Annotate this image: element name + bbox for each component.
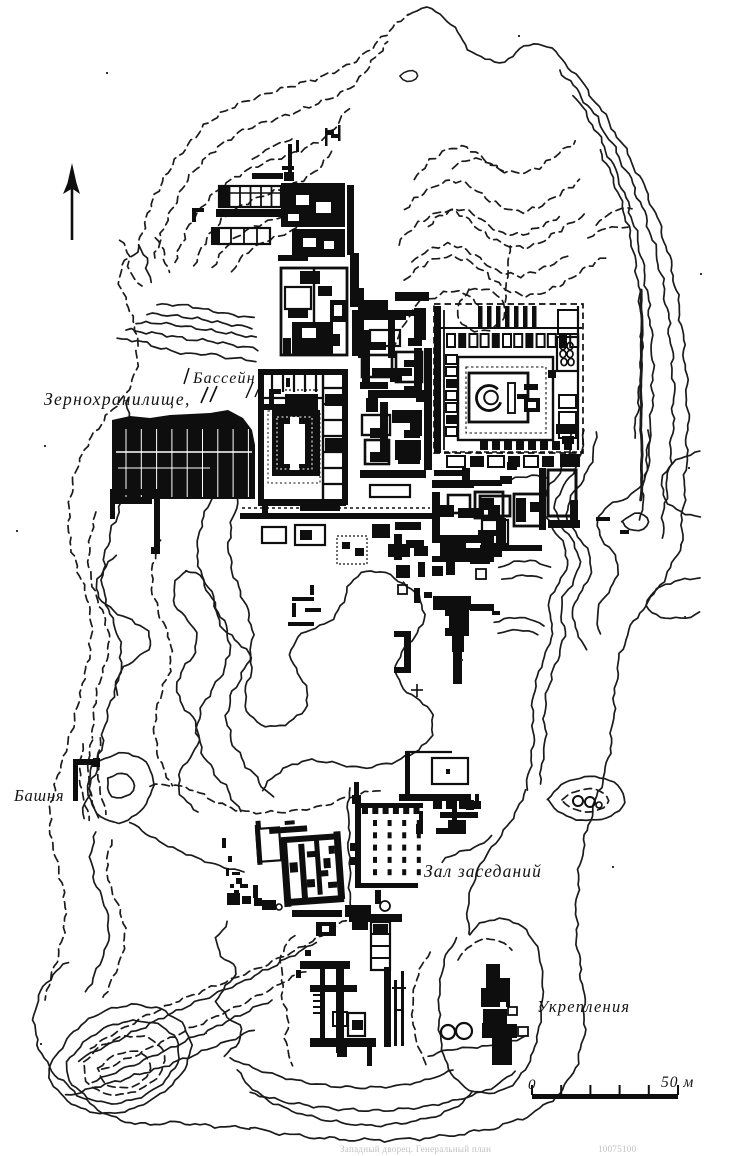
svg-text:Укрепления: Укрепления xyxy=(537,997,630,1016)
svg-text:Западный дворец. Генеральный п: Западный дворец. Генеральный план xyxy=(340,1144,491,1154)
svg-text:Бассейн: Бассейн xyxy=(192,370,256,387)
svg-text:0: 0 xyxy=(528,1077,536,1093)
svg-text:Зал заседаний: Зал заседаний xyxy=(424,861,542,881)
svg-text:10075100: 10075100 xyxy=(598,1144,637,1154)
svg-text:Зернохранилище,: Зернохранилище, xyxy=(44,389,191,409)
svg-text:Башня: Башня xyxy=(13,786,64,805)
svg-text:50 м: 50 м xyxy=(661,1074,694,1091)
